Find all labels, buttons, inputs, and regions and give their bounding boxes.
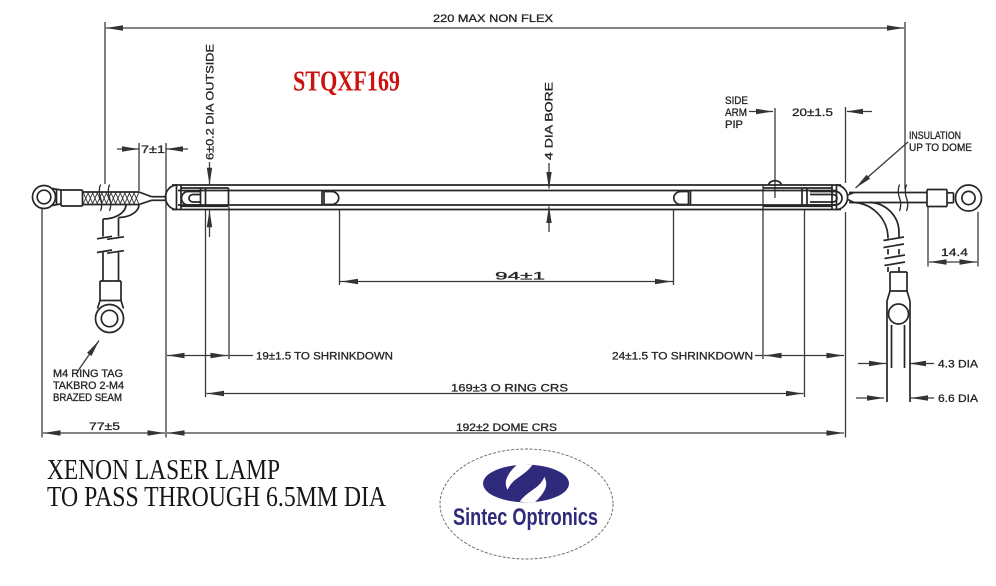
svg-text:14.4: 14.4	[941, 247, 968, 259]
svg-text:TO PASS THROUGH 6.5MM DIA: TO PASS THROUGH 6.5MM DIA	[47, 482, 386, 513]
svg-text:M4 RING TAG: M4 RING TAG	[53, 368, 123, 380]
svg-text:20±1.5: 20±1.5	[792, 107, 833, 119]
svg-text:SIDE: SIDE	[725, 95, 748, 107]
svg-text:6±0.2 DIA OUTSIDE: 6±0.2 DIA OUTSIDE	[205, 44, 217, 160]
svg-text:19±1.5 TO SHRINKDOWN: 19±1.5 TO SHRINKDOWN	[256, 351, 393, 363]
svg-text:STQXF169: STQXF169	[293, 67, 400, 98]
svg-text:6.6 DIA: 6.6 DIA	[938, 393, 979, 405]
svg-text:INSULATION: INSULATION	[909, 130, 961, 142]
svg-text:4 DIA BORE: 4 DIA BORE	[544, 82, 556, 160]
svg-text:77±5: 77±5	[89, 421, 120, 433]
svg-text:BRAZED SEAM: BRAZED SEAM	[53, 392, 122, 404]
svg-text:UP TO DOME: UP TO DOME	[909, 142, 972, 154]
svg-text:220 MAX NON FLEX: 220 MAX NON FLEX	[433, 13, 553, 25]
svg-text:7±1: 7±1	[141, 144, 165, 156]
svg-text:192±2 DOME CRS: 192±2 DOME CRS	[456, 422, 557, 434]
svg-text:169±3 O RING CRS: 169±3 O RING CRS	[451, 383, 568, 395]
svg-text:PIP: PIP	[725, 119, 743, 131]
svg-text:4.3 DIA: 4.3 DIA	[938, 359, 979, 371]
svg-text:94±1: 94±1	[495, 271, 545, 283]
svg-text:ARM: ARM	[725, 107, 747, 119]
svg-text:Sintec Optronics: Sintec Optronics	[453, 504, 598, 531]
svg-text:24±1.5 TO SHRINKDOWN: 24±1.5 TO SHRINKDOWN	[612, 351, 753, 363]
svg-text:TAKBRO 2-M4: TAKBRO 2-M4	[53, 380, 124, 392]
